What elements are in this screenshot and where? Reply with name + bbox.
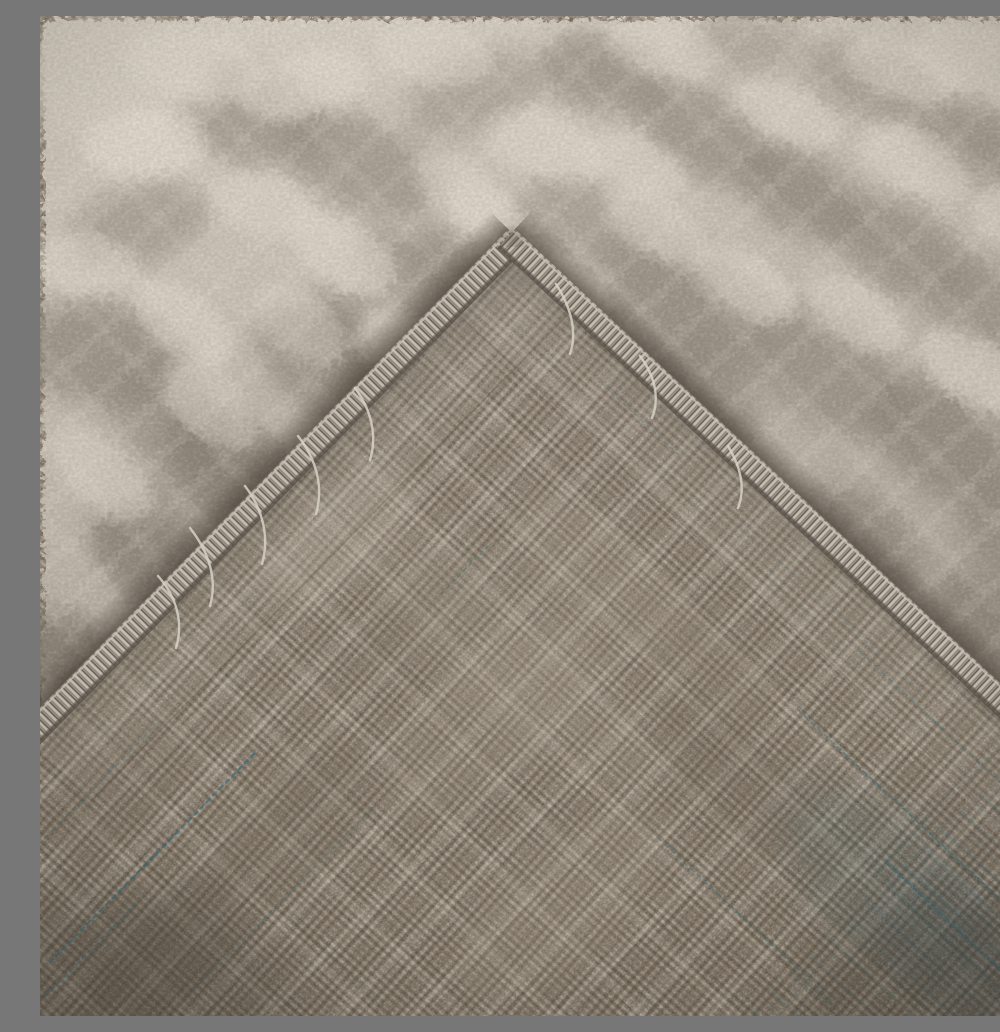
rug-photo-svg [40, 16, 1000, 1016]
vignette [40, 16, 1000, 1016]
rug-corner-photo [40, 16, 1000, 1016]
